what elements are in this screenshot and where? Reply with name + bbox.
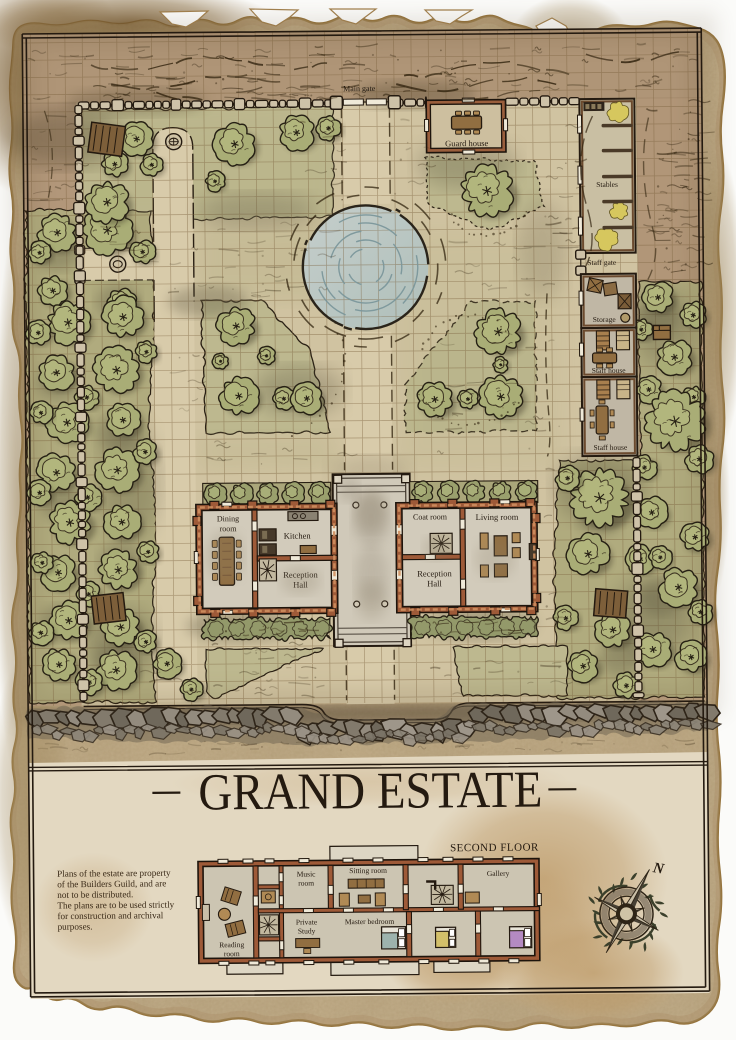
svg-text:Storage: Storage bbox=[593, 315, 617, 324]
svg-text:purposes.: purposes. bbox=[57, 921, 92, 931]
svg-text:Kitchen: Kitchen bbox=[284, 530, 312, 540]
svg-text:room: room bbox=[224, 949, 240, 958]
svg-text:for construction and archival: for construction and archival bbox=[57, 910, 163, 921]
svg-text:Reception: Reception bbox=[417, 568, 452, 578]
svg-text:GRAND ESTATE: GRAND ESTATE bbox=[198, 761, 542, 821]
svg-text:Living room: Living room bbox=[476, 512, 519, 522]
svg-text:SECOND FLOOR: SECOND FLOOR bbox=[450, 842, 539, 855]
svg-text:Hall: Hall bbox=[427, 578, 442, 588]
svg-text:Dining: Dining bbox=[217, 514, 239, 523]
svg-text:The plans are to be used stric: The plans are to be used strictly bbox=[57, 900, 174, 911]
svg-text:Plans of the estate are proper: Plans of the estate are property bbox=[57, 868, 171, 879]
svg-text:room: room bbox=[298, 878, 314, 887]
svg-text:Guard house: Guard house bbox=[445, 138, 489, 148]
svg-text:Study: Study bbox=[298, 926, 316, 935]
svg-text:Master bedroom: Master bedroom bbox=[345, 917, 395, 926]
svg-text:Main gate: Main gate bbox=[343, 84, 376, 93]
svg-text:of the Builders Guild, and are: of the Builders Guild, and are bbox=[57, 878, 166, 889]
svg-text:Music: Music bbox=[297, 869, 316, 878]
svg-text:Reading: Reading bbox=[219, 940, 244, 949]
svg-text:not to be distributed.: not to be distributed. bbox=[57, 889, 133, 900]
svg-text:Staff house: Staff house bbox=[593, 443, 628, 452]
svg-text:Private: Private bbox=[296, 917, 318, 926]
svg-text:Gallery: Gallery bbox=[487, 869, 510, 878]
svg-text:Coat room: Coat room bbox=[413, 512, 448, 521]
svg-text:Staff house: Staff house bbox=[592, 366, 627, 375]
svg-text:Sitting room: Sitting room bbox=[349, 866, 387, 875]
svg-text:Stables: Stables bbox=[596, 180, 618, 189]
svg-text:Staff gate: Staff gate bbox=[587, 258, 617, 267]
